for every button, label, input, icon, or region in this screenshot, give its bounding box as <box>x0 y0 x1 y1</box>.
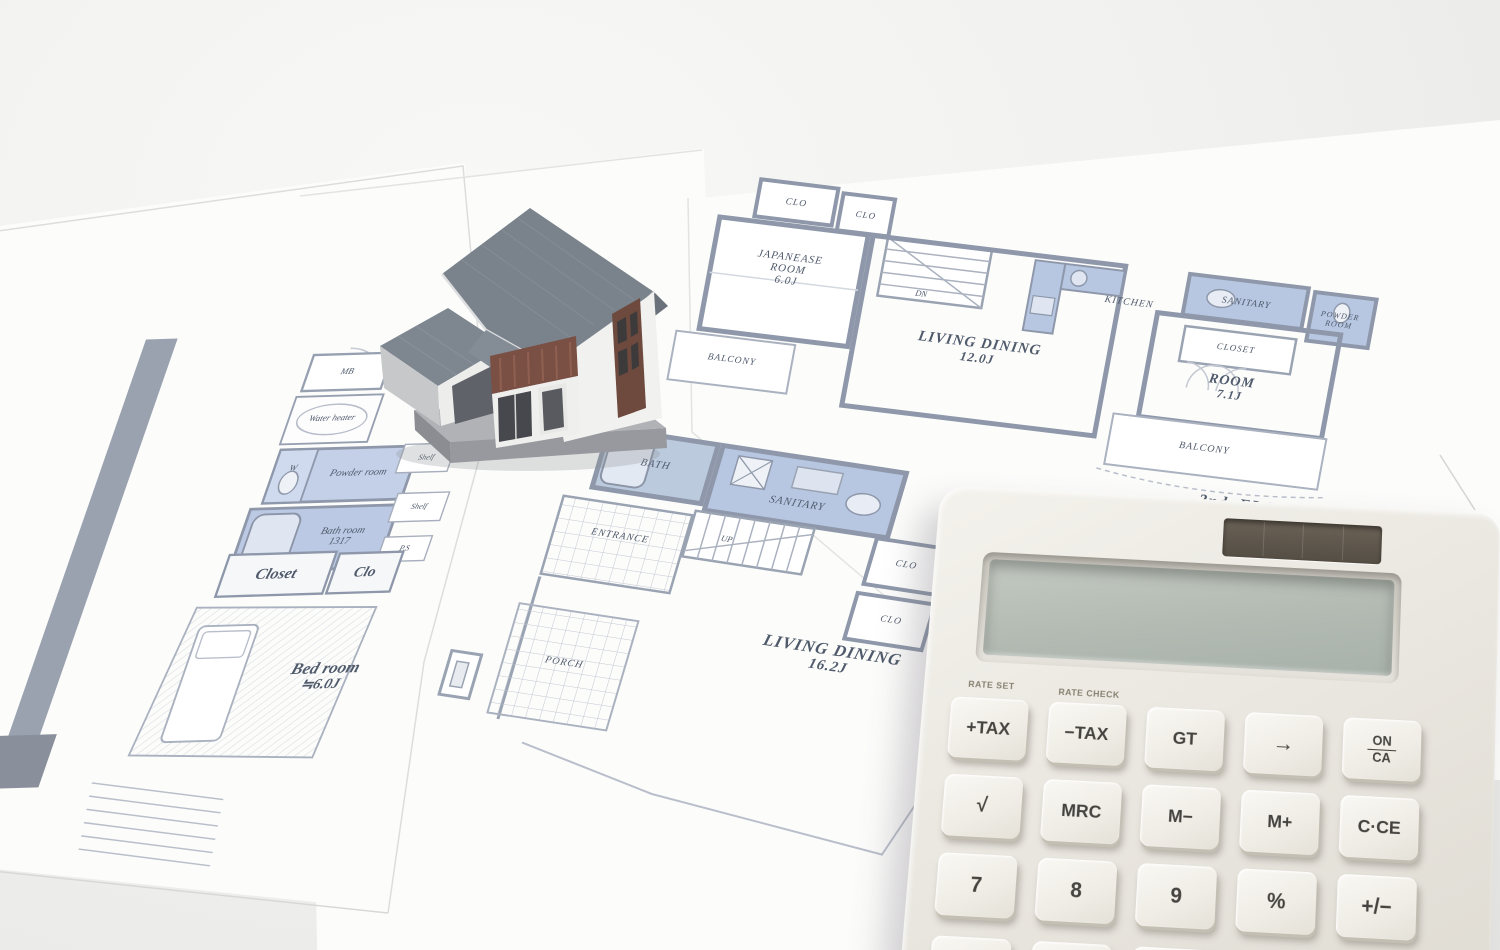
key-plus-tax[interactable]: +TAX <box>947 696 1029 761</box>
key-gt[interactable]: GT <box>1144 707 1225 772</box>
key-percent[interactable]: % <box>1235 868 1317 935</box>
label-water-heater: Water heater <box>304 413 361 424</box>
label-dn: DN <box>914 289 927 299</box>
rate-check-label: RATE CHECK <box>1058 686 1120 700</box>
stairs-lines <box>62 778 241 870</box>
door <box>542 388 564 431</box>
label-bath-room: Bath room 1317 <box>313 525 370 548</box>
key-on-ca[interactable]: ON CA <box>1342 717 1422 782</box>
key-8[interactable]: 8 <box>1034 857 1117 924</box>
key-7[interactable]: 7 <box>934 852 1018 919</box>
rate-set-label: RATE SET <box>968 679 1015 692</box>
key-row4-b[interactable] <box>1028 941 1112 950</box>
key-sqrt[interactable]: √ <box>941 774 1024 840</box>
key-m-minus[interactable]: M− <box>1139 784 1221 850</box>
pillow-icon <box>195 630 252 658</box>
calculator: RATE SET RATE CHECK +TAX −TAX GT → ON CA… <box>886 485 1500 950</box>
label-shelf-b: Shelf <box>410 503 429 512</box>
key-9[interactable]: 9 <box>1135 863 1218 930</box>
photo-scene: MB Water heater W Powder room Bath room … <box>0 0 1500 950</box>
lcd-display <box>983 559 1395 676</box>
label-bed-room: Bed room ≒6.0J <box>258 658 388 694</box>
terrace-outline <box>506 716 934 859</box>
key-ca-label: CA <box>1367 748 1396 766</box>
key-minus-tax[interactable]: −TAX <box>1045 702 1127 767</box>
key-on-label: ON <box>1372 733 1392 749</box>
window-mullion <box>515 394 516 439</box>
key-mrc[interactable]: MRC <box>1040 779 1123 845</box>
stair-landing <box>0 734 57 789</box>
key-4[interactable]: 4 <box>927 935 1012 950</box>
label-closet: Closet <box>253 565 299 583</box>
key-arrow[interactable]: → <box>1243 712 1324 777</box>
key-c-ce[interactable]: C·CE <box>1339 795 1420 861</box>
house-model <box>378 180 698 485</box>
solar-panel <box>1222 518 1382 564</box>
key-plus-minus[interactable]: +/− <box>1336 874 1418 941</box>
lcd-frame <box>975 552 1402 684</box>
brown-window-panel <box>612 298 646 418</box>
key-m-plus[interactable]: M+ <box>1239 789 1320 855</box>
key-row4-c[interactable] <box>1130 946 1213 950</box>
